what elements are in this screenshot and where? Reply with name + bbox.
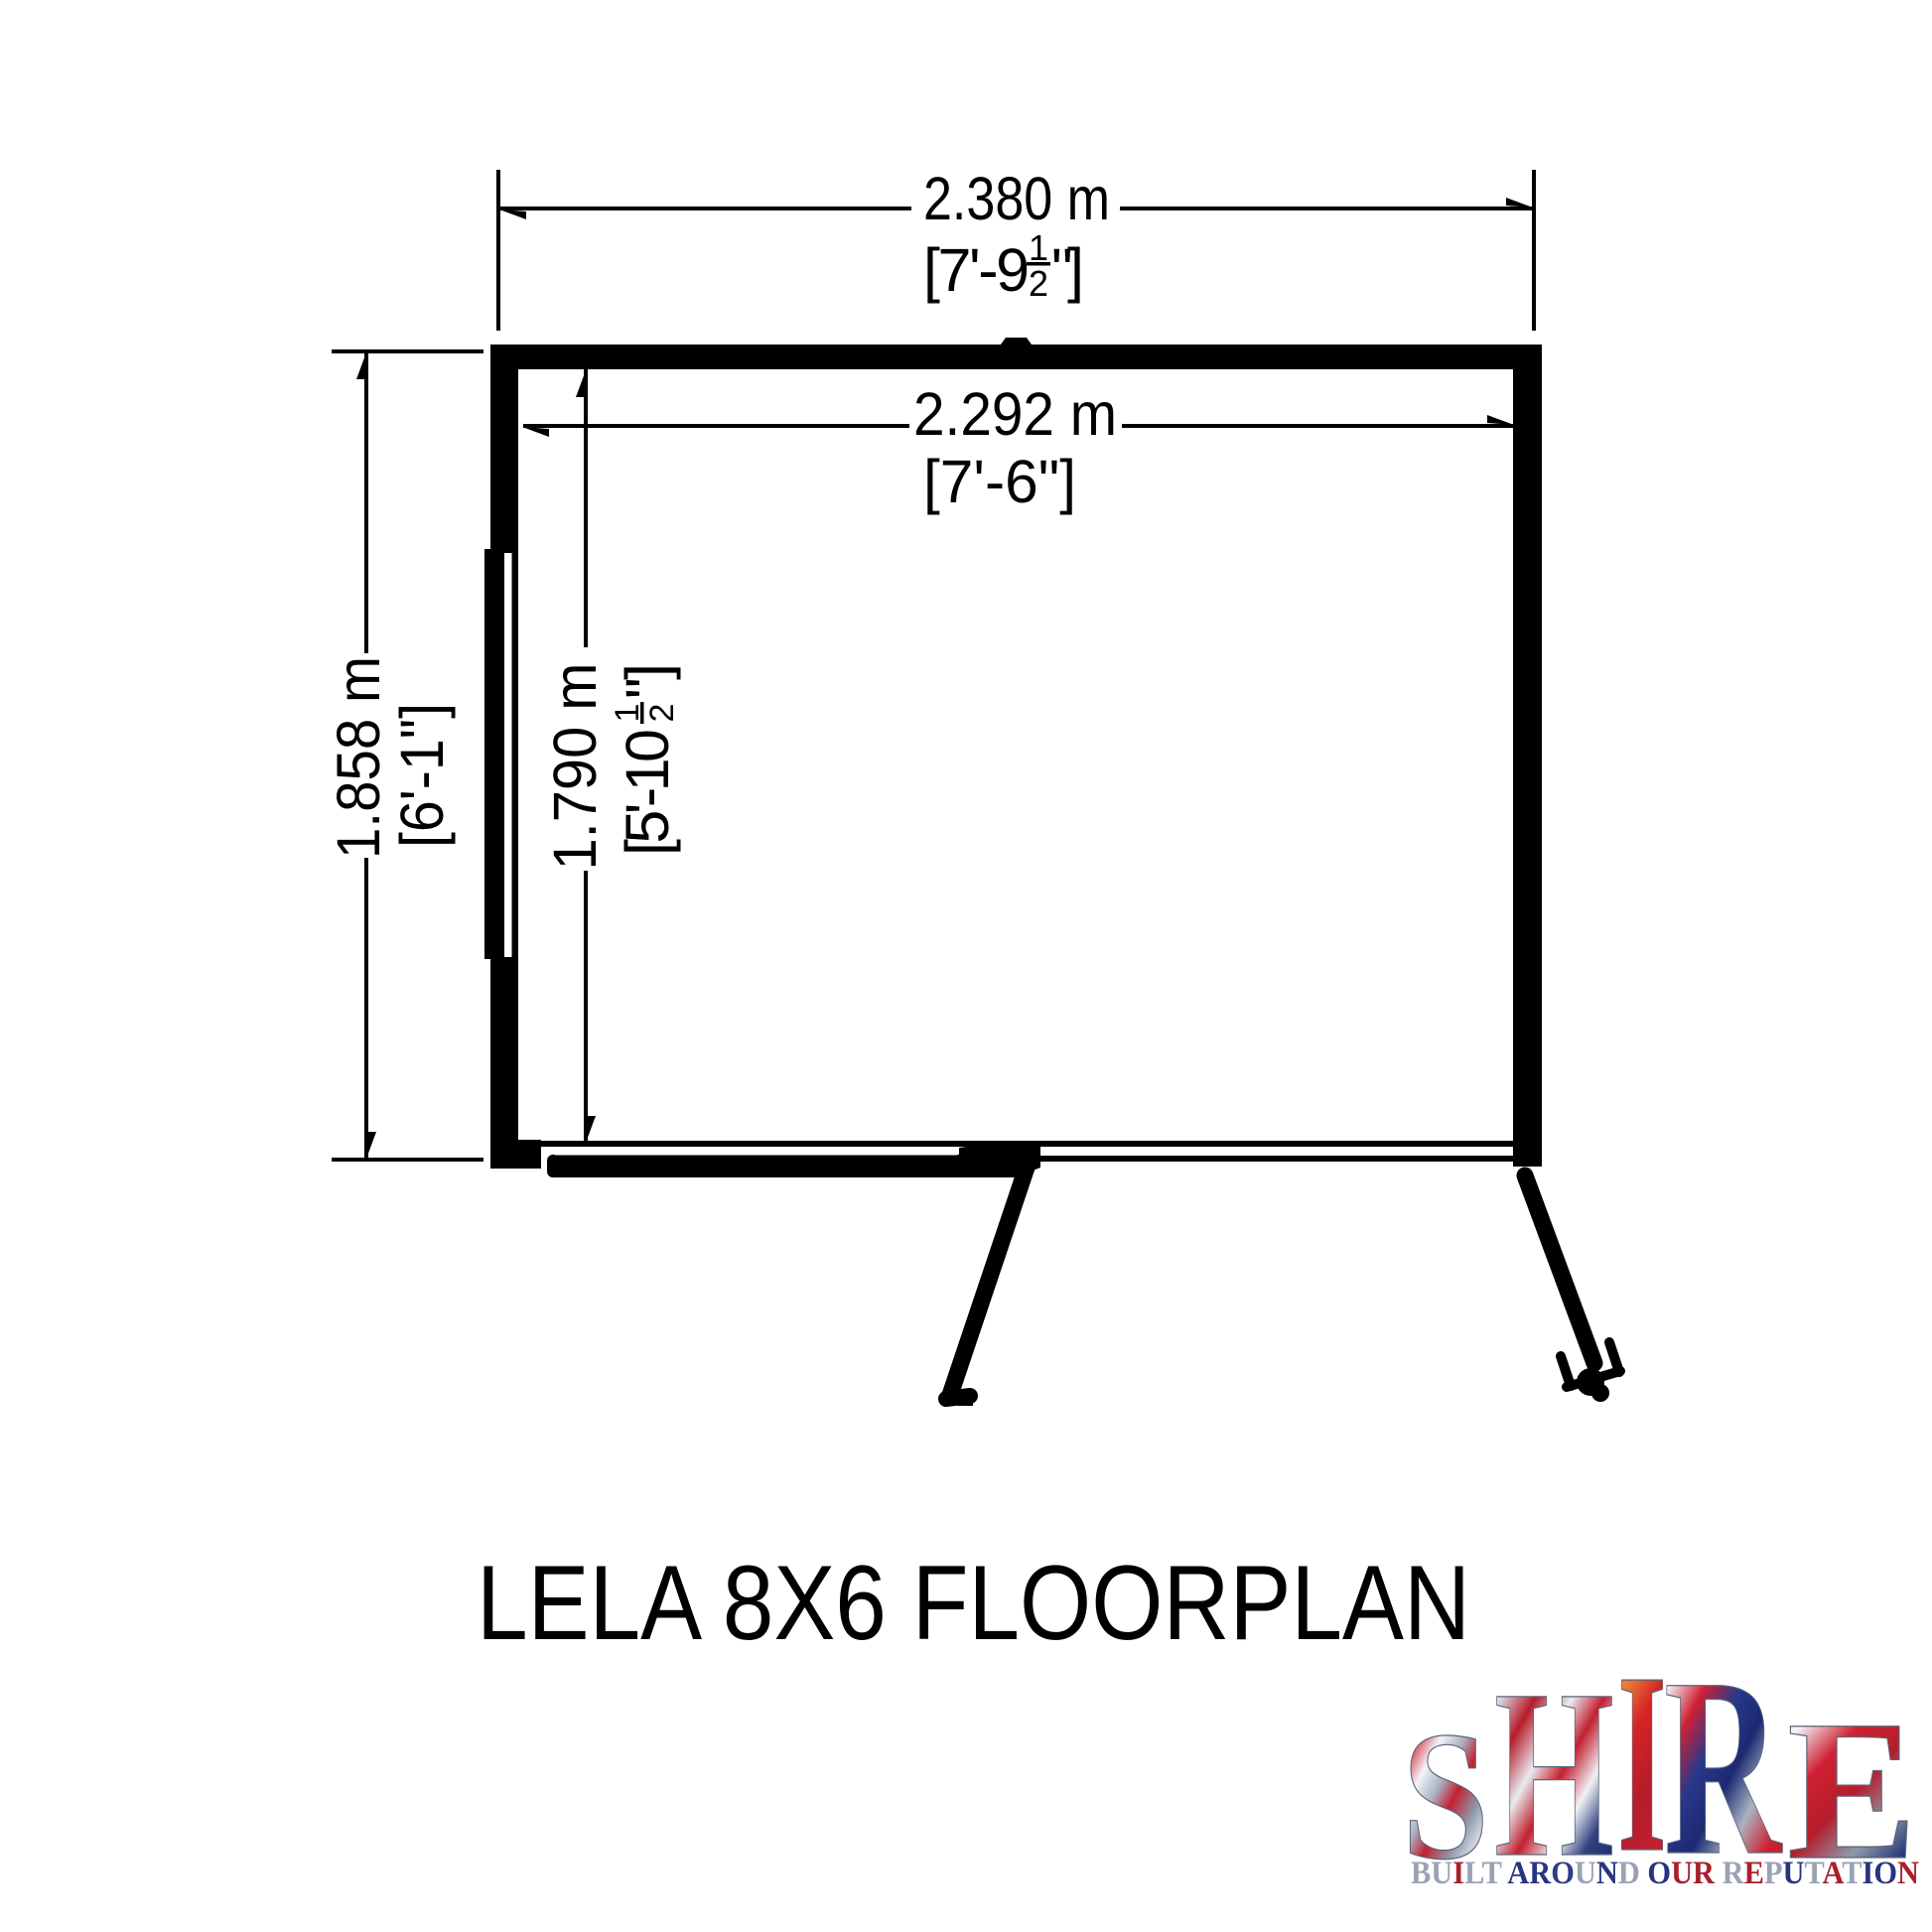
svg-text:"]: "]: [614, 663, 681, 699]
svg-text:2: 2: [643, 704, 681, 723]
svg-text:2.380 m: 2.380 m: [923, 165, 1110, 232]
svg-text:2.292 m: 2.292 m: [913, 380, 1117, 448]
svg-text:[6'-1"]: [6'-1"]: [388, 703, 456, 848]
svg-text:LELA 8X6 FLOORPLAN: LELA 8X6 FLOORPLAN: [477, 1543, 1470, 1662]
svg-text:"]: "]: [1051, 236, 1084, 304]
svg-text:[7'-9: [7'-9: [923, 236, 1030, 304]
svg-text:1.790 m: 1.790 m: [541, 663, 609, 871]
svg-text:1: 1: [1029, 227, 1048, 268]
svg-text:[7'-6"]: [7'-6"]: [923, 448, 1076, 515]
svg-text:[5'-10: [5'-10: [614, 729, 681, 856]
svg-text:1.858 m: 1.858 m: [325, 656, 392, 859]
svg-text:2: 2: [1029, 263, 1048, 304]
svg-text:BUILT AROUND OUR REPUTATION: BUILT AROUND OUR REPUTATION: [1411, 1856, 1919, 1891]
